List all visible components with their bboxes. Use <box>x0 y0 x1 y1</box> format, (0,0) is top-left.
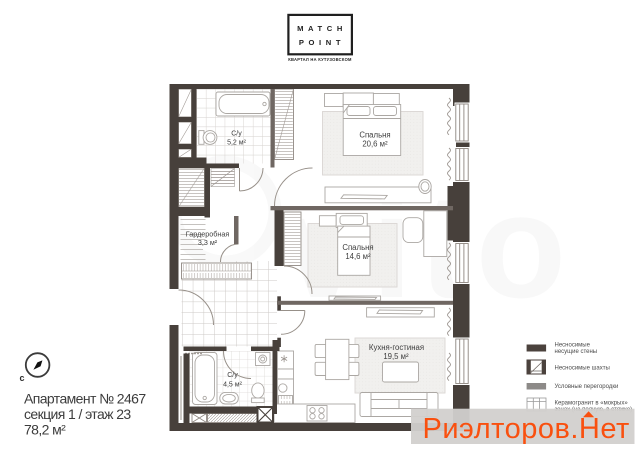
svg-text:3,3 м²: 3,3 м² <box>198 238 218 247</box>
svg-text:19,5 м²: 19,5 м² <box>383 352 409 361</box>
svg-text:несущие стены: несущие стены <box>555 349 598 355</box>
svg-text:78,2 м²: 78,2 м² <box>24 422 66 438</box>
svg-text:Риэлторов.Нет: Риэлторов.Нет <box>423 413 630 445</box>
svg-text:Спальня: Спальня <box>359 131 390 140</box>
svg-text:С/у: С/у <box>227 372 238 379</box>
svg-text:Апартамент № 2467: Апартамент № 2467 <box>24 391 146 407</box>
svg-text:Спальня: Спальня <box>342 243 373 252</box>
svg-text:С/у: С/у <box>231 131 242 138</box>
svg-text:с: с <box>20 373 25 383</box>
svg-text:секция 1 / этаж 23: секция 1 / этаж 23 <box>24 406 131 422</box>
svg-text:4,5 м²: 4,5 м² <box>223 382 242 389</box>
svg-text:Кухня-гостиная: Кухня-гостиная <box>369 343 424 352</box>
svg-text:MATCH: MATCH <box>297 24 347 33</box>
svg-text:Условные перегородки: Условные перегородки <box>555 384 619 390</box>
svg-text:14,6 м²: 14,6 м² <box>345 252 371 261</box>
svg-text:Керамогранит в «мокрых»: Керамогранит в «мокрых» <box>555 401 629 407</box>
svg-text:20,6 м²: 20,6 м² <box>362 140 388 149</box>
svg-text:POINT: POINT <box>299 38 345 47</box>
svg-text:Несносимые шахты: Несносимые шахты <box>555 366 610 372</box>
svg-text:Несносимые: Несносимые <box>555 343 591 349</box>
svg-text:КВАРТАЛ НА КУТУЗОВСКОМ: КВАРТАЛ НА КУТУЗОВСКОМ <box>288 57 352 62</box>
svg-text:5,2 м²: 5,2 м² <box>227 140 246 147</box>
